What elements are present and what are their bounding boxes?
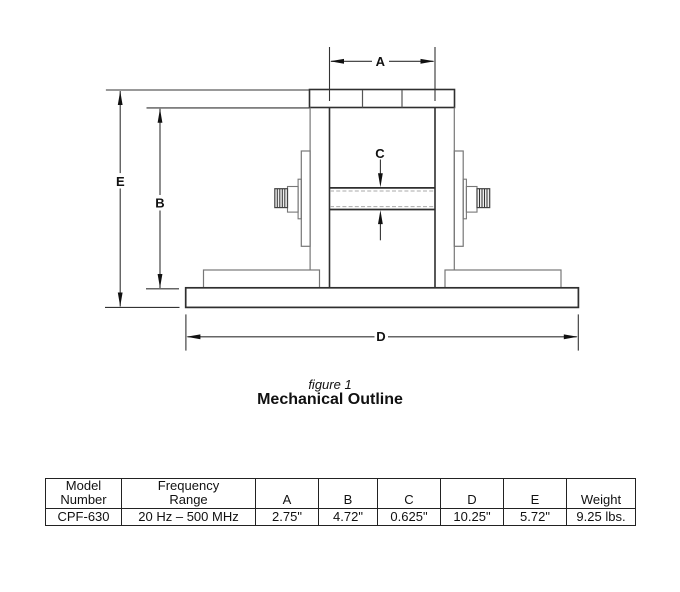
svg-text:E: E <box>116 174 125 189</box>
svg-text:B: B <box>155 195 164 210</box>
svg-text:A: A <box>376 54 386 69</box>
svg-text:D: D <box>376 329 385 344</box>
svg-text:C: C <box>375 146 385 161</box>
